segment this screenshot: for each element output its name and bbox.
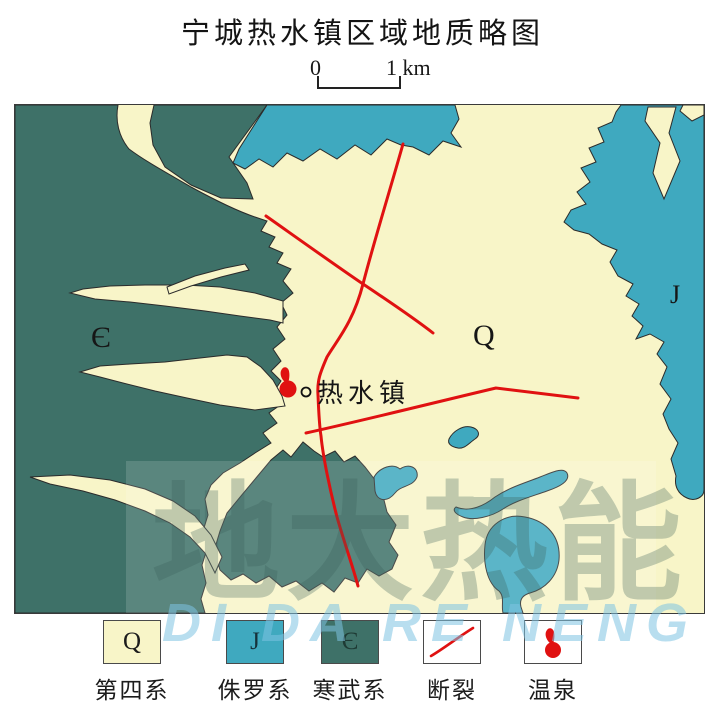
spring-swatch bbox=[524, 620, 582, 664]
cambrian-symbol: Є bbox=[342, 628, 359, 656]
cambrian-swatch: Є bbox=[321, 620, 379, 664]
jurassic-label: J bbox=[670, 280, 680, 309]
map-title: 宁城热水镇区域地质略图 bbox=[0, 10, 725, 52]
jurassic-swatch: J bbox=[226, 620, 284, 664]
legend: Q 第四系 J 侏罗系 Є 寒武系 断裂 bbox=[0, 615, 725, 702]
town-marker bbox=[302, 388, 311, 397]
scale-bar bbox=[317, 76, 401, 89]
watermark-panel bbox=[126, 461, 656, 613]
quaternary-symbol: Q bbox=[123, 628, 141, 656]
quaternary-legend-label: 第四系 bbox=[72, 671, 192, 702]
spring-legend-label: 温泉 bbox=[493, 671, 613, 702]
town-label: 热水镇 bbox=[317, 379, 410, 408]
page: 宁城热水镇区域地质略图 0 1 km bbox=[0, 0, 725, 702]
quaternary-swatch: Q bbox=[103, 620, 161, 664]
fault-swatch bbox=[423, 620, 481, 664]
fault-icon bbox=[424, 621, 480, 663]
legend-item-spring: 温泉 bbox=[493, 615, 613, 702]
map-canvas: Є Q J 热水镇 bbox=[15, 105, 704, 613]
legend-item-quaternary: Q 第四系 bbox=[72, 615, 192, 702]
cambrian-label: Є bbox=[91, 321, 111, 354]
hot-spring-icon bbox=[525, 621, 581, 663]
quaternary-label: Q bbox=[473, 319, 495, 352]
geologic-map: Є Q J 热水镇 bbox=[14, 104, 705, 614]
jurassic-symbol: J bbox=[250, 628, 260, 656]
